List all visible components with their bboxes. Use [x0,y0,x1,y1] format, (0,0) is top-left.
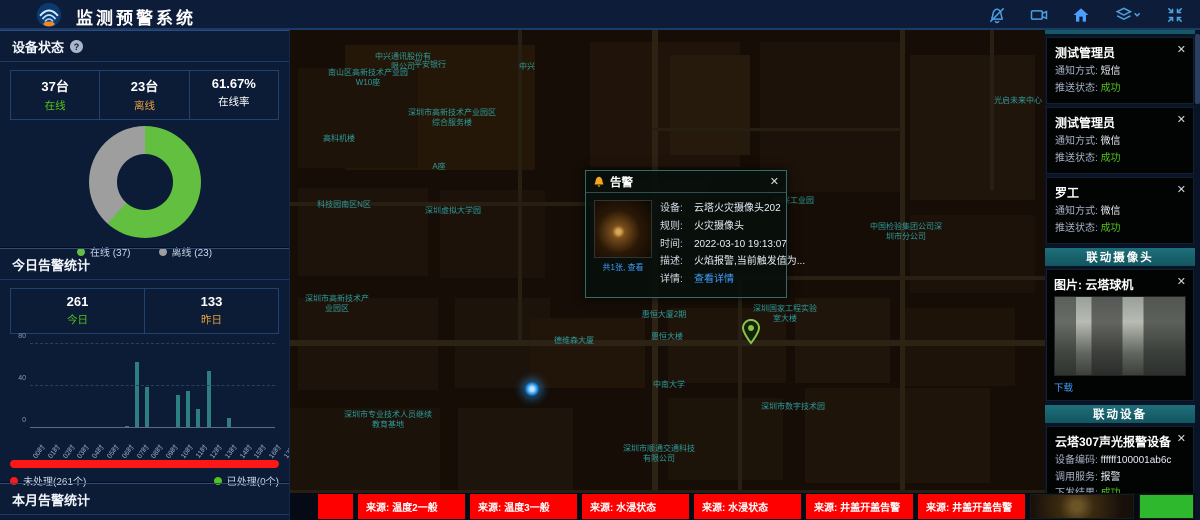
bar-column [163,344,173,428]
bar-column [122,344,132,428]
page-title: 监测预警系统 [76,4,196,29]
blue-location-marker[interactable] [524,381,540,397]
map-road [652,128,902,131]
download-link[interactable]: 下载 [1054,380,1186,394]
popup-close-icon[interactable]: ✕ [770,175,779,188]
map-place-label: 光启未来中心 [988,96,1045,106]
bar-column [50,344,60,428]
x-tick-label: 05时 [104,432,119,450]
help-icon[interactable]: ? [70,40,83,53]
app-logo-icon [36,2,62,28]
map-place-label: 深圳市高新技术产业园区综合服务楼 [406,108,498,128]
map-block [905,308,1015,386]
alert-popup-titlebar: 告警 ✕ [586,171,786,193]
hourly-alarm-bar-chart: 80400 00时01时02时03时04时05时06时07时08时09时10时1… [10,340,279,458]
bar-column [152,344,162,428]
map-place-label: 中国检验集团公司深圳市分公司 [870,222,942,242]
map-place-label: 深圳市专业技术人员继续教育基地 [342,410,434,430]
linked-device-header: 联动设备 [1045,405,1195,423]
alert-popup-body: 共1张, 查看 设备:云塔火灾摄像头202 规则:火灾摄像头 时间:2022-0… [586,193,786,296]
fullscreen-icon[interactable] [1164,4,1186,26]
video-thumbnail-green[interactable] [1139,494,1194,519]
right-sidebar: ✕ 测试管理员 通知方式: 短信 推送状态: 成功 ✕ 测试管理员 通知方式: … [1045,30,1195,520]
header-icon-group [986,0,1186,30]
alert-source-tile[interactable] [318,494,353,519]
map-place-label: 南山区高新技术产业园W10座 [326,68,410,88]
today-alarm-panel: 今日告警统计 261 今日 133 昨日 80400 00时01时02时03时0… [0,248,289,483]
today-alarm-stats: 261 今日 133 昨日 [10,288,279,334]
device-status-stats: 37台 在线 23台 离线 61.67% 在线率 [10,70,279,120]
left-sidebar: 设备状态 ? 37台 在线 23台 离线 61.67% 在线率 [0,30,290,520]
device-status-title: 设备状态 [12,37,64,56]
home-icon[interactable] [1070,4,1092,26]
alert-popup-title: 告警 [610,174,765,190]
bar-column [71,344,81,428]
alert-source-tile[interactable]: 来源: 水浸状态 [694,494,801,519]
view-detail-link[interactable]: 查看详情 [694,271,734,289]
map-place-label: 高科机楼 [314,134,364,144]
device-status-header: 设备状态 ? [0,31,289,62]
card-close-icon[interactable]: ✕ [1177,432,1186,445]
card-close-icon[interactable]: ✕ [1177,183,1186,196]
donut-hole [117,154,173,210]
alert-source-tile[interactable]: 来源: 井盖开盖告警 [918,494,1025,519]
layers-icon[interactable] [1112,4,1144,26]
stat-online: 37台 在线 [11,71,100,119]
map-place-label: 深圳市高新技术产业园区 [304,294,370,314]
green-pin-marker[interactable] [740,318,762,346]
bar-column [132,344,142,428]
bar-column [254,344,264,428]
field-detail: 详情: 查看详情 [660,271,805,289]
field-description: 描述:火焰报警,当前触发值为... [660,253,805,271]
bar-column [30,344,40,428]
bar-chart-xlabels: 00时01时02时03时04时05时06时07时08时09时10时11时12时1… [30,432,275,450]
x-axis-line [30,427,275,428]
map-block [670,55,750,155]
map-place-label: 中兴 [512,62,542,72]
bar-column [244,344,254,428]
month-alarm-panel: 本月告警统计 763 1146 [0,483,289,520]
map-place-label: A座 [426,162,452,172]
today-alarm-header: 今日告警统计 [0,249,289,280]
scrollbar[interactable] [1195,30,1200,520]
card-close-icon[interactable]: ✕ [1177,275,1186,288]
y-tick-label: 40 [12,375,26,382]
linked-camera-header: 联动摄像头 [1045,248,1195,266]
map-block [910,55,1035,200]
bar [145,387,149,428]
gridline [30,385,275,386]
card-close-icon[interactable]: ✕ [1177,113,1186,126]
x-tick-label: 04时 [89,432,104,450]
month-alarm-header: 本月告警统计 [0,484,289,515]
today-alarm-title: 今日告警统计 [12,255,90,274]
alert-bell-icon [593,175,605,188]
y-tick-label: 80 [12,333,26,340]
map-place-label: 德维森大厦 [544,336,604,346]
notification-header-sliver [1045,30,1195,34]
notification-card: ✕ 测试管理员 通知方式: 短信 推送状态: 成功 [1046,37,1194,104]
map-place-label: 惠恒大厦2期 [632,310,696,320]
map-road [990,30,994,190]
bar-column [112,344,122,428]
camera-card-title: 图片: 云塔球机 [1054,276,1186,293]
bar-column [183,344,193,428]
notification-card: ✕ 罗工 通知方式: 微信 推送状态: 成功 [1046,177,1194,244]
map-place-label: 科技园南区N区 [304,200,384,210]
alert-fields: 设备:云塔火灾摄像头202 规则:火灾摄像头 时间:2022-03-10 19:… [660,200,805,289]
bar [135,362,139,428]
bar-column [224,344,234,428]
alert-source-tile[interactable]: 来源: 水浸状态 [582,494,689,519]
bar-column [173,344,183,428]
x-tick-label: 13时 [222,432,237,450]
bar-column [214,344,224,428]
bar-column [101,344,111,428]
alert-photo[interactable] [594,200,652,258]
video-camera-icon[interactable] [1028,4,1050,26]
bar [176,395,180,428]
stat-today: 261 今日 [11,289,145,333]
bar-column [61,344,71,428]
alert-source-tile[interactable]: 来源: 温度2一般 [358,494,465,519]
notification-card: ✕ 测试管理员 通知方式: 微信 推送状态: 成功 [1046,107,1194,174]
bar-column [193,344,203,428]
x-tick-label: 01时 [45,432,60,450]
bar-column [265,344,275,428]
field-time: 时间:2022-03-10 19:13:07 [660,236,805,254]
map-road [518,30,522,343]
bar-column [142,344,152,428]
map-place-label: 深圳虚拟大学园 [412,206,494,216]
bottom-alert-bar: 来源: 温度2一般来源: 温度3一般来源: 水浸状态来源: 水浸状态来源: 井盖… [290,493,1200,520]
dashboard: 监测预警系统 [0,0,1200,520]
x-tick-label: 00时 [30,432,45,450]
field-device: 设备:云塔火灾摄像头202 [660,200,805,218]
scrollbar-thumb[interactable] [1195,34,1200,104]
bar [207,371,211,428]
x-tick-label: 09时 [163,432,178,450]
top-header: 监测预警系统 [0,0,1200,30]
video-thumbnail-dark[interactable] [1030,494,1134,519]
unhandled-progress-bar [10,460,279,468]
x-tick-label: 16时 [266,432,281,450]
map-place-label: 深圳市顺通交通科技有限公司 [620,444,698,464]
map-place-label: 惠恒大楼 [642,332,692,342]
x-tick-label: 06时 [119,432,134,450]
device-donut-chart [89,126,201,238]
card-close-icon[interactable]: ✕ [1177,43,1186,56]
alert-source-tile[interactable]: 来源: 井盖开盖告警 [806,494,913,519]
map-block [530,318,645,388]
camera-snapshot[interactable] [1054,296,1186,376]
alert-photo-caption[interactable]: 共1张, 查看 [594,262,652,273]
bar-chart-plot: 80400 [30,344,275,428]
bar-column [81,344,91,428]
bar [196,409,200,428]
x-tick-label: 12时 [207,432,222,450]
bar [186,391,190,428]
map-road [900,30,905,493]
bar-column [234,344,244,428]
bar-column [40,344,50,428]
gridline [30,343,275,344]
stat-online-rate: 61.67% 在线率 [190,71,278,119]
y-tick-label: 0 [12,417,26,424]
alert-source-tile[interactable]: 来源: 温度3一般 [470,494,577,519]
alert-photo-wrap: 共1张, 查看 [594,200,652,289]
bar-column [203,344,213,428]
map-place-label: 平安银行 [404,60,456,70]
map-block [458,408,573,493]
stat-offline: 23台 离线 [100,71,189,119]
linked-camera-card: ✕ 图片: 云塔球机 下载 [1046,269,1194,401]
bell-muted-icon[interactable] [986,4,1008,26]
x-tick-label: 10时 [178,432,193,450]
field-rule: 规则:火灾摄像头 [660,218,805,236]
map-road [738,280,742,493]
map-canvas[interactable]: 中兴通讯股份有限公司中兴光启未来中心南山区高新技术产业园W10座平安银行深圳市高… [290,30,1045,520]
device-status-panel: 设备状态 ? 37台 在线 23台 离线 61.67% 在线率 [0,30,289,248]
bar-chart-bars [30,344,275,428]
map-place-label: 深圳市数字技术园 [748,402,838,412]
stat-yesterday: 133 昨日 [145,289,278,333]
map-place-label: 中南大学 [644,380,694,390]
month-alarm-title: 本月告警统计 [12,490,90,509]
bar-column [91,344,101,428]
alert-popup: 告警 ✕ 共1张, 查看 设备:云塔火灾摄像头202 规则:火灾摄像头 时间: [585,170,787,298]
